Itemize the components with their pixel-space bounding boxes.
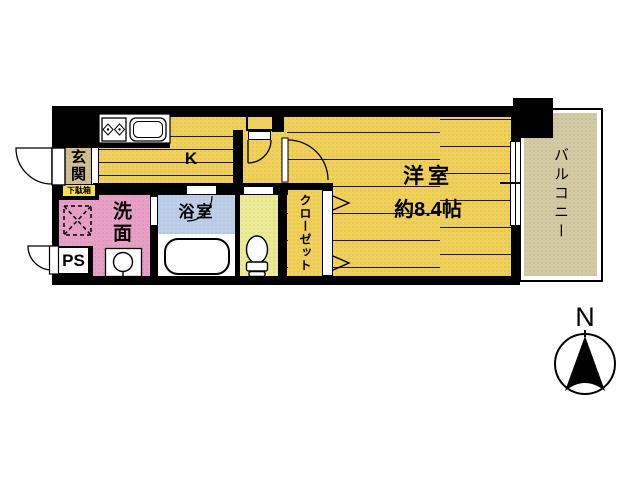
compass-icon <box>0 0 640 480</box>
floor-plan-canvas: バルコニー 玄関 下駄箱 洗面 浴室 クローゼット PS <box>0 0 640 480</box>
